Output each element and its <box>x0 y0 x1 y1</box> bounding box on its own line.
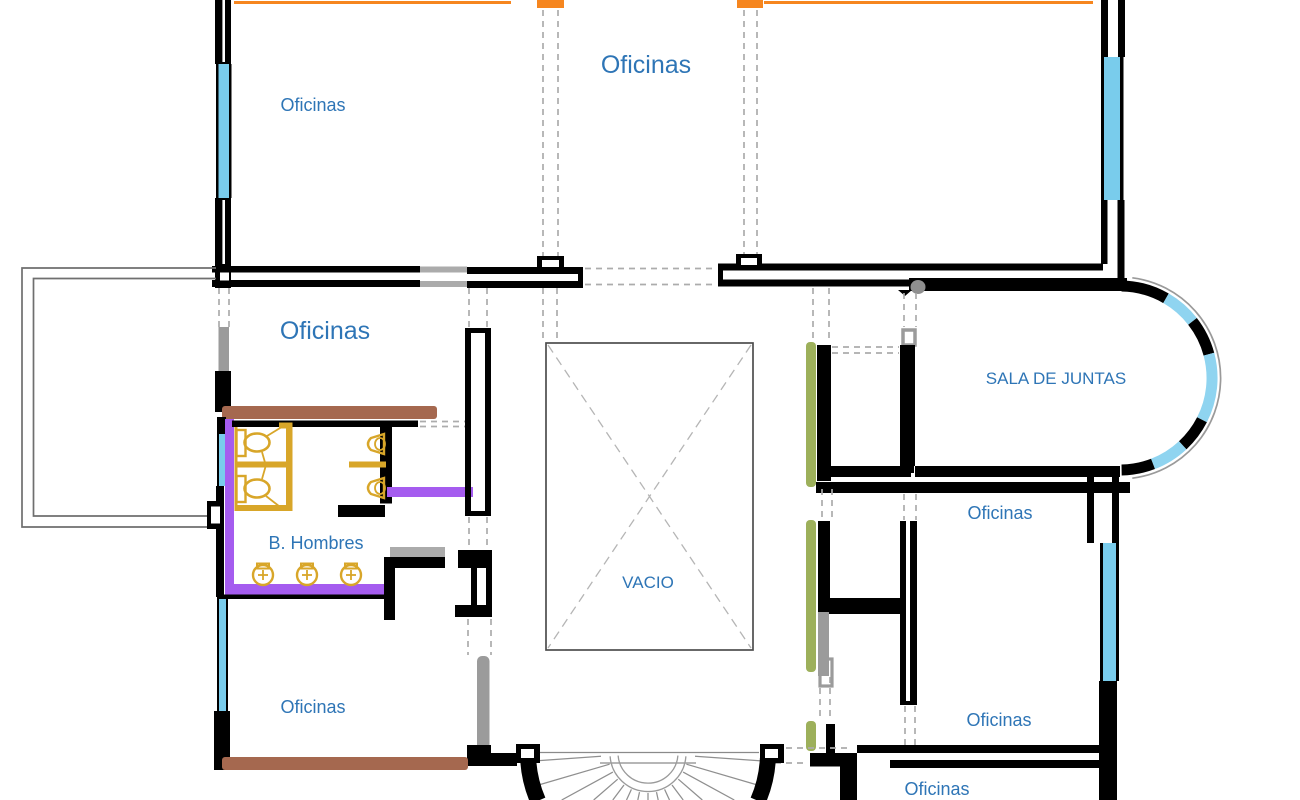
svg-text:SALA DE JUNTAS: SALA DE JUNTAS <box>986 369 1126 388</box>
svg-text:Oficinas: Oficinas <box>280 697 345 717</box>
svg-text:Oficinas: Oficinas <box>601 51 691 79</box>
svg-text:B. Hombres: B. Hombres <box>268 533 363 553</box>
svg-text:Oficinas: Oficinas <box>904 779 969 799</box>
svg-text:Oficinas: Oficinas <box>280 95 345 115</box>
svg-text:Oficinas: Oficinas <box>967 503 1032 523</box>
svg-text:Oficinas: Oficinas <box>966 710 1031 730</box>
svg-text:Oficinas: Oficinas <box>280 317 370 345</box>
svg-text:VACIO: VACIO <box>622 573 674 592</box>
